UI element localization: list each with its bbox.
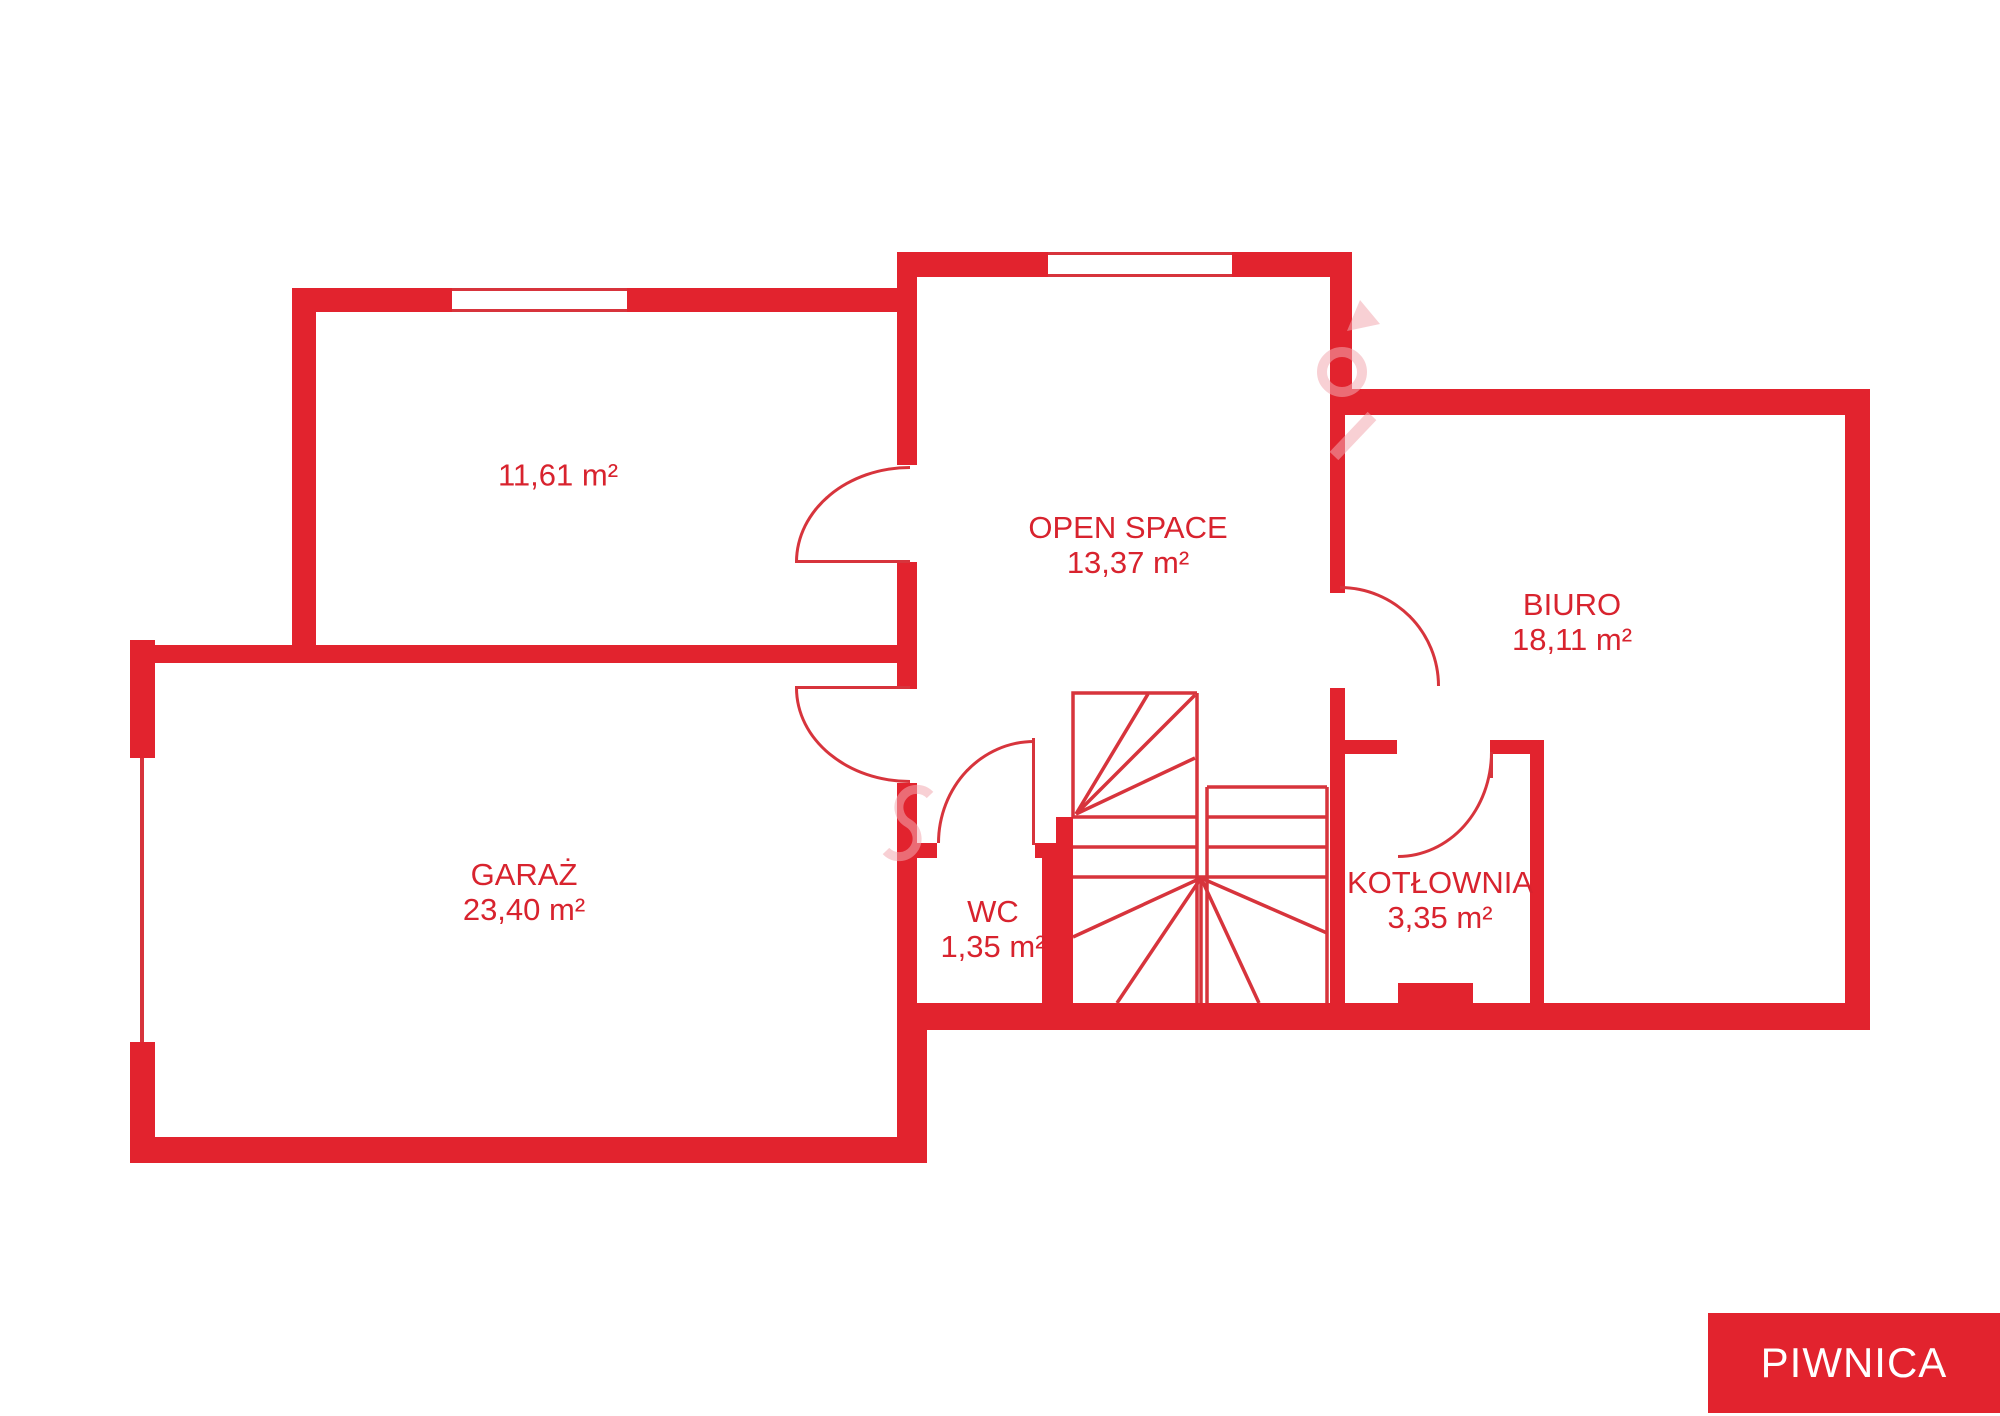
- room-name: GARAŻ: [463, 857, 585, 892]
- floor-badge: PIWNICA: [1708, 1313, 2000, 1413]
- floor-plan: 11,61 m² OPEN SPACE 13,37 m² BIURO 18,11…: [0, 0, 2000, 1416]
- wall: [292, 288, 316, 662]
- room-name: BIURO: [1512, 587, 1632, 622]
- wall: [1042, 843, 1073, 1003]
- wall: [1330, 688, 1345, 1003]
- wall: [897, 1030, 927, 1137]
- wall: [897, 1003, 1870, 1030]
- wall: [1845, 389, 1870, 1030]
- wall: [1330, 252, 1352, 415]
- room-area: 1,35 m²: [940, 929, 1045, 964]
- door-arc: [1340, 586, 1440, 686]
- door-arc: [795, 466, 910, 562]
- room-label-room-a: 11,61 m²: [498, 458, 618, 493]
- room-label-open-space: OPEN SPACE 13,37 m²: [1028, 510, 1227, 580]
- boiler-block: [1398, 983, 1473, 1003]
- garage-door: [140, 758, 144, 1042]
- door-arc: [1398, 752, 1493, 858]
- wall: [897, 562, 917, 689]
- stairs: [0, 0, 2000, 1416]
- wall: [1345, 740, 1397, 754]
- wall: [1056, 817, 1073, 843]
- wall: [130, 1137, 927, 1163]
- room-area: 3,35 m²: [1347, 900, 1533, 935]
- wall: [1490, 740, 1530, 754]
- wall: [130, 640, 155, 758]
- room-name: WC: [940, 894, 1045, 929]
- door-arc: [937, 740, 1034, 843]
- room-label-wc: WC 1,35 m²: [940, 894, 1045, 964]
- floor-badge-label: PIWNICA: [1761, 1339, 1948, 1387]
- room-area: 11,61 m²: [498, 458, 618, 493]
- room-label-biuro: BIURO 18,11 m²: [1512, 587, 1632, 657]
- wall: [897, 312, 917, 465]
- room-label-kotlownia: KOTŁOWNIA 3,35 m²: [1347, 865, 1533, 935]
- room-label-garaz: GARAŻ 23,40 m²: [463, 857, 585, 927]
- window: [452, 288, 627, 312]
- wall: [897, 843, 937, 858]
- room-name: OPEN SPACE: [1028, 510, 1227, 545]
- wall: [1352, 389, 1870, 415]
- wall: [1330, 415, 1345, 593]
- room-area: 18,11 m²: [1512, 622, 1632, 657]
- wall: [897, 783, 917, 1003]
- room-name: KOTŁOWNIA: [1347, 865, 1533, 900]
- door-arc: [795, 688, 910, 783]
- room-area: 23,40 m²: [463, 892, 585, 927]
- window: [1048, 252, 1232, 277]
- room-area: 13,37 m²: [1028, 545, 1227, 580]
- wall: [130, 645, 910, 663]
